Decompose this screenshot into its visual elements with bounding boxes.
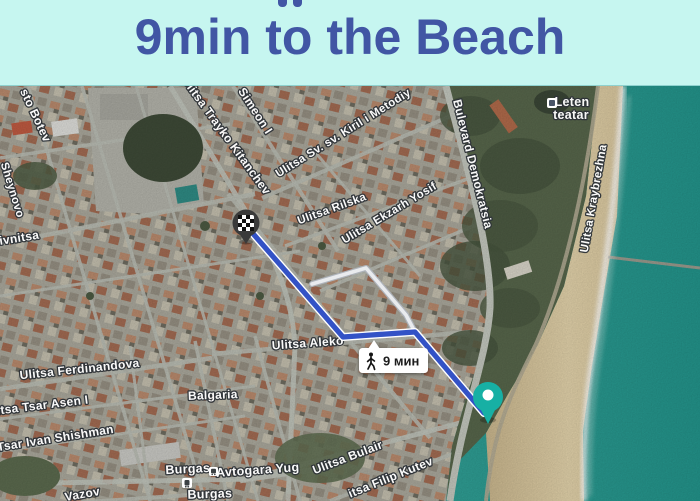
- satellite-map: sto BotevSheynovolivnitsaUlitsa Trayko K…: [0, 86, 700, 501]
- bus-station-icon: [209, 467, 218, 476]
- texture-overlay: [0, 86, 700, 501]
- theater-poi-icon: [547, 98, 557, 108]
- train-station-icon: [182, 478, 192, 488]
- map-label: Balgaria: [188, 387, 238, 403]
- route-duration-label: 9 мин: [383, 354, 419, 369]
- map-image: sto BotevSheynovolivnitsaUlitsa Trayko K…: [0, 86, 700, 501]
- map-label: Leten: [555, 95, 590, 109]
- map-label: teatar: [553, 108, 589, 122]
- map-label: Burgas: [187, 486, 232, 501]
- page-title: 9min to the Beach: [0, 10, 700, 65]
- cropped-title-descender: [293, 0, 302, 7]
- caption-banner: 9min to the Beach: [0, 0, 700, 86]
- map-label: Burgas: [165, 461, 211, 477]
- cropped-title-descender: [278, 0, 287, 7]
